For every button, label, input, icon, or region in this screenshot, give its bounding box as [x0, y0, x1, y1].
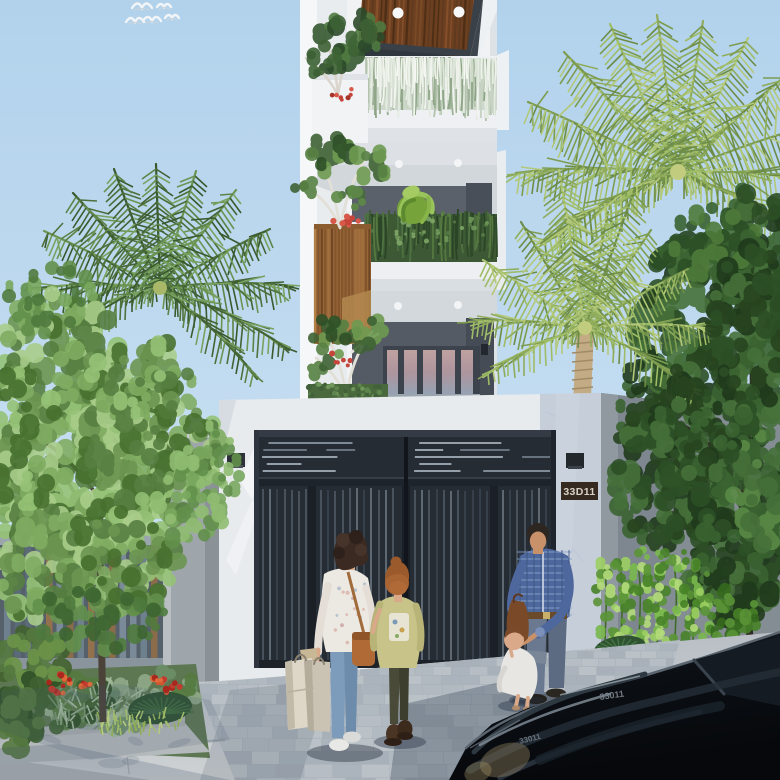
- svg-text:33D11: 33D11: [563, 486, 595, 498]
